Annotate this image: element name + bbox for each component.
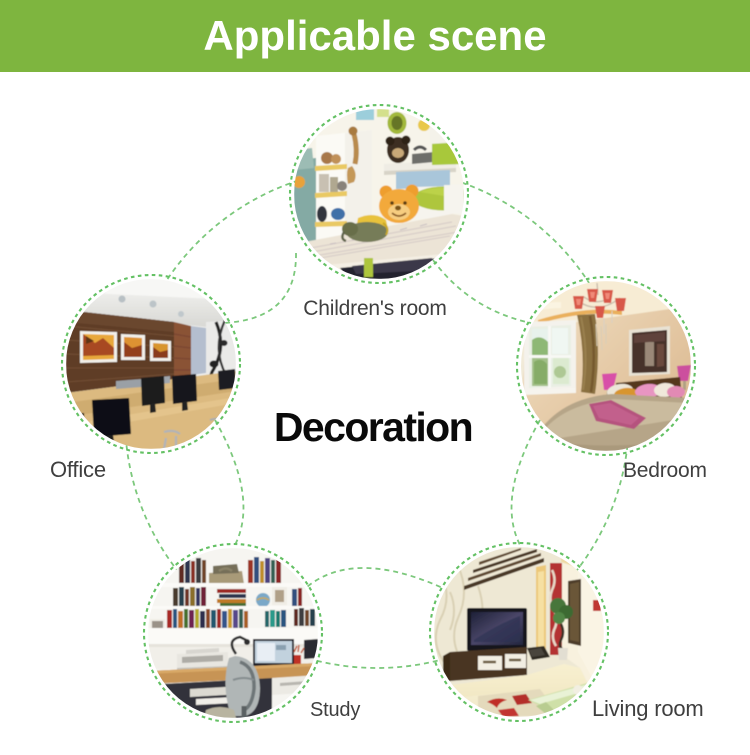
svg-text:Bedroom: Bedroom (623, 459, 707, 482)
svg-text:Children's room: Children's room (303, 297, 446, 320)
svg-text:Study: Study (310, 699, 360, 721)
svg-text:Decoration: Decoration (274, 404, 472, 450)
svg-text:Office: Office (50, 457, 106, 482)
svg-text:Applicable scene: Applicable scene (203, 12, 546, 59)
svg-text:Living room: Living room (592, 696, 704, 721)
